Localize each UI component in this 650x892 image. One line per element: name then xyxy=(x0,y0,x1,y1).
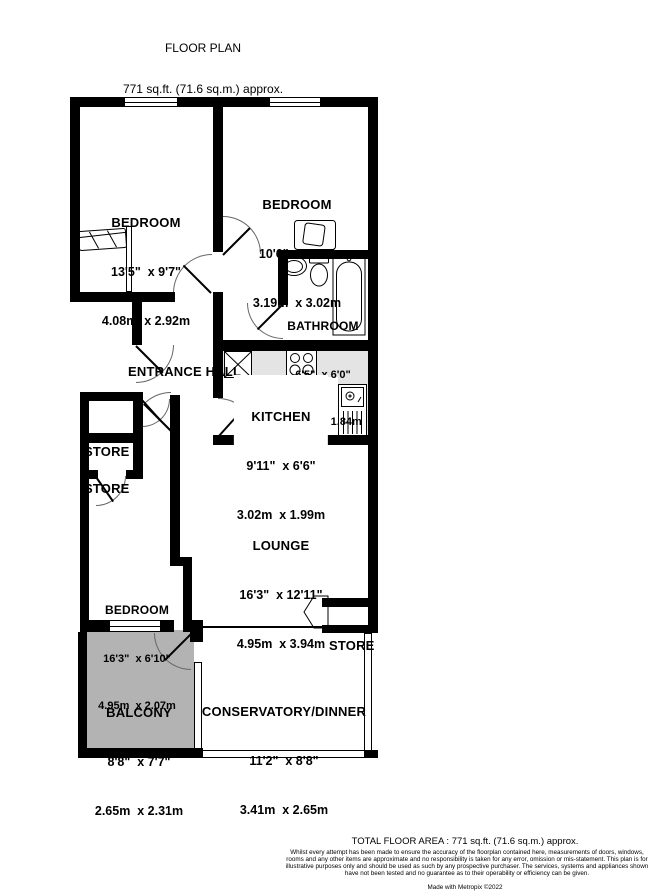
room-dims-imperial: 16'3" x 6'10" xyxy=(98,653,176,665)
wall-segment xyxy=(70,97,80,302)
floor-plan-area-subheading: 771 sq.ft. (71.6 sq.m.) approx. xyxy=(123,83,283,97)
room-dims-imperial: 16'3" x 12'11" xyxy=(237,589,325,603)
total-floor-area-text: TOTAL FLOOR AREA : 771 sq.ft. (71.6 sq.m… xyxy=(352,836,579,847)
wall-segment xyxy=(190,620,203,642)
room-label-lounge: LOUNGE 16'3" x 12'11" 4.95m x 3.94m xyxy=(237,504,325,687)
room-label-conservatory: CONSERVATORY/DINNER 11'2" x 8'8" 3.41m x… xyxy=(202,670,366,853)
room-label-store-2: STORE xyxy=(84,447,130,532)
room-name: BATHROOM xyxy=(284,320,362,333)
room-dims-metric: 2.65m x 2.31m xyxy=(95,805,183,819)
wall-segment xyxy=(78,632,87,758)
room-label-bedroom-1: BEDROOM 13'5" x 9'7" 4.08m x 2.92m xyxy=(102,181,190,364)
room-name: BEDROOM xyxy=(102,216,190,230)
room-name: CONSERVATORY/DINNER xyxy=(202,705,366,719)
room-dims-metric: 3.41m x 2.65m xyxy=(202,804,366,818)
page-title: FLOOR PLAN 771 sq.ft. (71.6 sq.m.) appro… xyxy=(123,14,283,124)
wall-segment xyxy=(133,392,143,433)
room-dims-imperial: 10'6" x 9'11" xyxy=(253,248,341,262)
floor-plan-heading: FLOOR PLAN xyxy=(123,42,283,56)
room-dims-metric: 4.95m x 3.94m xyxy=(237,638,325,652)
room-name: BALCONY xyxy=(95,706,183,720)
wall-segment xyxy=(364,750,378,758)
metropix-credit-text: Made with Metropix ©2022 xyxy=(428,884,503,891)
room-label-balcony: BALCONY 8'8" x 7'7" 2.65m x 2.31m xyxy=(95,671,183,854)
room-name: BEDROOM xyxy=(253,198,341,212)
room-name: KITCHEN xyxy=(237,410,325,424)
floor-plan: FLOOR PLAN 771 sq.ft. (71.6 sq.m.) appro… xyxy=(0,0,650,892)
wall-segment xyxy=(170,395,180,565)
disclaimer-text: Whilst every attempt has been made to en… xyxy=(283,849,650,877)
room-name: STORE xyxy=(84,482,130,496)
room-dims-imperial: 9'11" x 6'6" xyxy=(237,460,325,474)
room-name: LOUNGE xyxy=(237,539,325,553)
room-dims-imperial: 13'5" x 9'7" xyxy=(102,266,190,280)
room-name: BEDROOM xyxy=(98,604,176,617)
room-dims-imperial: 11'2" x 8'8" xyxy=(202,755,366,769)
room-name: STORE xyxy=(329,639,375,653)
room-dims-metric: 4.08m x 2.92m xyxy=(102,315,190,329)
room-dims-imperial: 8'8" x 7'7" xyxy=(95,756,183,770)
room-name: ENTRANCE HALL xyxy=(128,365,241,379)
wall-segment xyxy=(368,97,378,633)
wall-segment xyxy=(322,598,378,607)
conservatory-glazed-wall-left xyxy=(194,662,202,752)
wall-segment xyxy=(322,625,378,633)
